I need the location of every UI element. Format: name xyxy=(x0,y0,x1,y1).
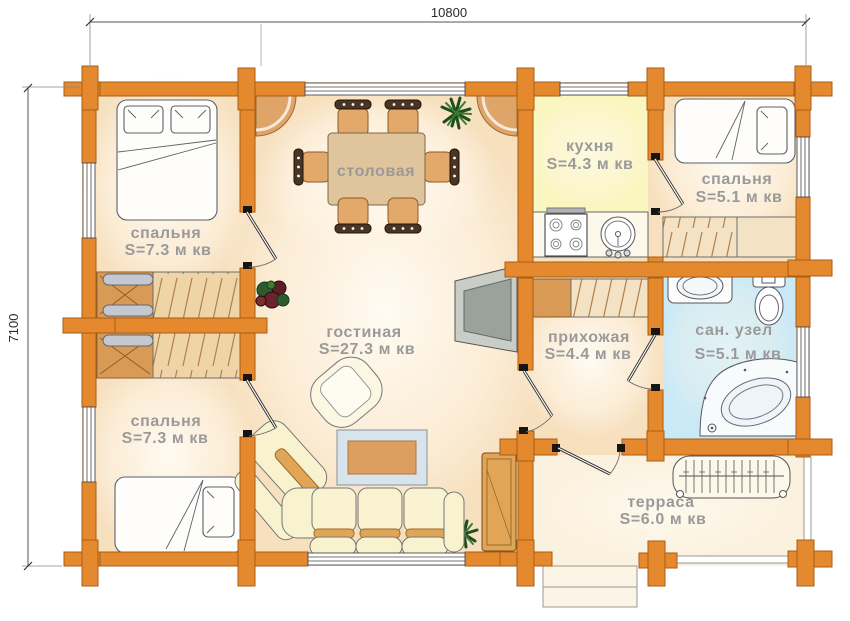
room-label-dining-room: столовая xyxy=(337,163,415,180)
room-area: S=5.1 м кв xyxy=(696,189,783,206)
room-label-bedroom-bottom-left: спальня S=7.3 м кв xyxy=(122,413,209,447)
window xyxy=(308,553,465,565)
room-name: прихожая xyxy=(548,329,630,346)
window xyxy=(797,137,809,197)
room-label-living-room: гостиная S=27.3 м кв xyxy=(319,324,415,358)
room-area: S=6.0 м кв xyxy=(620,511,707,528)
room-area: S=7.3 м кв xyxy=(125,242,212,259)
room-area: S=7.3 м кв xyxy=(122,430,209,447)
floor-plan: 10800 7100 спальня S=7.3 м кв столовая к… xyxy=(0,0,850,621)
room-name: спальня xyxy=(702,171,773,188)
plant xyxy=(256,281,289,308)
room-label-terrace: терраса S=6.0 м кв xyxy=(620,494,707,528)
room-name: гостиная xyxy=(326,324,401,341)
room-label-bedroom-top-left: спальня S=7.3 м кв xyxy=(125,225,212,259)
chair xyxy=(335,198,371,233)
wardrobe-top-left xyxy=(97,272,240,318)
room-area: S=5.1 м кв xyxy=(695,346,782,363)
wardrobe-top-right xyxy=(663,217,796,257)
wardrobe-hallway xyxy=(533,279,648,317)
coffee-table xyxy=(337,430,427,485)
room-label-hallway: прихожая S=4.4 м кв xyxy=(545,329,632,363)
kitchen-counter xyxy=(533,208,648,258)
bed-top-right xyxy=(675,99,795,163)
room-name: спальня xyxy=(131,413,202,430)
room-name: столовая xyxy=(337,163,415,180)
chair xyxy=(385,198,421,233)
room-name: терраса xyxy=(627,494,694,511)
cabinet xyxy=(482,453,516,551)
window xyxy=(797,327,809,397)
window xyxy=(83,407,95,482)
room-label-bedroom-top-right: спальня S=5.1 м кв xyxy=(696,171,783,206)
chair xyxy=(385,100,421,136)
bed-top-left xyxy=(117,100,217,220)
entrance-steps xyxy=(543,566,637,607)
wardrobe-bottom-left xyxy=(97,333,240,378)
chair xyxy=(335,100,371,136)
floor-plan-svg: 10800 7100 спальня S=7.3 м кв столовая к… xyxy=(0,0,850,621)
dimension-width-label: 10800 xyxy=(431,5,467,20)
tv xyxy=(455,266,517,352)
toilet xyxy=(753,272,785,325)
window xyxy=(305,83,465,95)
stove xyxy=(545,214,587,256)
dimension-height-label: 7100 xyxy=(6,314,21,343)
chair xyxy=(424,149,459,185)
window xyxy=(83,163,95,238)
room-area: S=4.4 м кв xyxy=(545,346,632,363)
kitchen-sink xyxy=(601,217,635,258)
room-area: S=27.3 м кв xyxy=(319,341,415,358)
chair xyxy=(294,149,330,185)
room-name: спальня xyxy=(131,225,202,242)
dimension-top: 10800 xyxy=(86,5,810,68)
bench xyxy=(673,456,790,498)
room-name: кухня xyxy=(566,138,614,155)
bed-bottom-left xyxy=(115,477,242,553)
window xyxy=(560,83,628,95)
room-area: S=4.3 м кв xyxy=(547,156,634,173)
room-name: сан. узел xyxy=(695,322,772,339)
